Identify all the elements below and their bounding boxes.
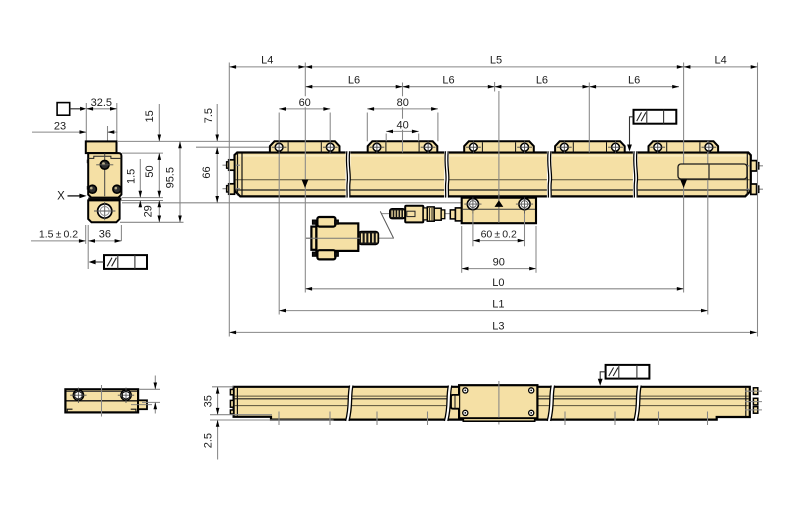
svg-text:L5: L5 — [490, 55, 502, 67]
svg-text:40: 40 — [396, 119, 408, 131]
svg-text:2.5: 2.5 — [202, 433, 214, 448]
svg-text:L1: L1 — [492, 299, 504, 311]
svg-text:L6: L6 — [628, 74, 640, 86]
svg-text:29: 29 — [143, 205, 155, 217]
svg-text:32.5: 32.5 — [91, 97, 112, 109]
svg-text:L4: L4 — [714, 55, 726, 67]
svg-text:7.5: 7.5 — [203, 108, 215, 123]
svg-text:90: 90 — [493, 257, 505, 269]
svg-text:60 ± 0.2: 60 ± 0.2 — [481, 228, 517, 240]
svg-text:L6: L6 — [536, 74, 548, 86]
svg-text:X: X — [57, 191, 65, 203]
svg-text:L3: L3 — [492, 320, 504, 332]
svg-text:60: 60 — [299, 97, 311, 109]
svg-text:L4: L4 — [261, 55, 273, 67]
svg-text:L6: L6 — [442, 74, 454, 86]
svg-text:35: 35 — [202, 395, 214, 407]
svg-text:23: 23 — [54, 121, 66, 133]
svg-text:15: 15 — [144, 110, 156, 122]
svg-text:1.5: 1.5 — [125, 169, 137, 184]
svg-text:50: 50 — [144, 165, 156, 177]
svg-text:L0: L0 — [492, 277, 504, 289]
svg-text:L6: L6 — [348, 74, 360, 86]
svg-text:95.5: 95.5 — [165, 167, 177, 188]
svg-text:80: 80 — [397, 97, 409, 109]
svg-text:1.5 ± 0.2: 1.5 ± 0.2 — [39, 229, 78, 241]
svg-text:36: 36 — [99, 229, 111, 241]
svg-text:66: 66 — [201, 166, 213, 178]
